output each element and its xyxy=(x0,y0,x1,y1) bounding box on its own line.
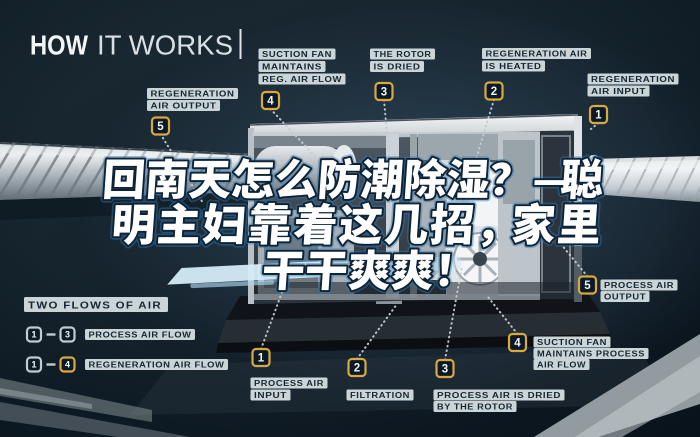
svg-text:1: 1 xyxy=(258,353,265,365)
svg-text:AIR FLOW: AIR FLOW xyxy=(537,360,586,369)
svg-text:THE ROTOR: THE ROTOR xyxy=(374,50,432,59)
svg-text:5: 5 xyxy=(584,280,591,292)
svg-text:4: 4 xyxy=(267,96,274,108)
svg-text:3: 3 xyxy=(65,330,70,340)
svg-text:1: 1 xyxy=(31,360,36,370)
svg-text:REGENERATION AIR FLOW: REGENERATION AIR FLOW xyxy=(89,360,225,369)
svg-text:3: 3 xyxy=(442,364,448,376)
svg-text:BY THE ROTOR: BY THE ROTOR xyxy=(437,402,513,411)
svg-text:IT WORKS: IT WORKS xyxy=(97,30,233,61)
svg-text:PROCESS AIR FLOW: PROCESS AIR FLOW xyxy=(89,330,192,339)
svg-text:1: 1 xyxy=(595,110,602,122)
svg-text:HOW: HOW xyxy=(30,30,88,61)
svg-text:IS HEATED: IS HEATED xyxy=(486,62,542,71)
svg-text:REG. AIR FLOW: REG. AIR FLOW xyxy=(262,75,342,84)
svg-text:MAINTAINS PROCESS: MAINTAINS PROCESS xyxy=(537,349,645,358)
svg-text:REGENERATION: REGENERATION xyxy=(151,89,235,98)
svg-text:REGENERATION AIR: REGENERATION AIR xyxy=(486,49,588,58)
svg-text:TWO FLOWS OF AIR: TWO FLOWS OF AIR xyxy=(28,300,162,312)
svg-text:5: 5 xyxy=(157,121,164,133)
svg-text:4: 4 xyxy=(514,338,521,350)
svg-text:AIR OUTPUT: AIR OUTPUT xyxy=(151,101,217,110)
svg-text:PROCESS AIR IS DRIED: PROCESS AIR IS DRIED xyxy=(437,391,561,400)
svg-text:3: 3 xyxy=(381,87,387,99)
svg-text:2: 2 xyxy=(354,363,360,375)
svg-text:4: 4 xyxy=(65,360,70,370)
svg-text:FILTRATION: FILTRATION xyxy=(350,391,410,400)
svg-text:AIR INPUT: AIR INPUT xyxy=(591,87,646,96)
svg-text:PROCESS AIR: PROCESS AIR xyxy=(254,379,324,388)
svg-text:OUTPUT: OUTPUT xyxy=(604,292,646,301)
svg-text:PROCESS AIR: PROCESS AIR xyxy=(604,281,674,290)
svg-text:INPUT: INPUT xyxy=(254,391,287,400)
svg-text:1: 1 xyxy=(31,330,36,340)
svg-text:SUCTION FAN: SUCTION FAN xyxy=(262,50,332,59)
svg-text:IS DRIED: IS DRIED xyxy=(374,62,421,71)
svg-text:MAINTAINS: MAINTAINS xyxy=(262,62,322,71)
svg-text:REGENERATION: REGENERATION xyxy=(591,75,675,84)
svg-text:SUCTION FAN: SUCTION FAN xyxy=(537,338,607,347)
svg-text:2: 2 xyxy=(491,86,497,98)
